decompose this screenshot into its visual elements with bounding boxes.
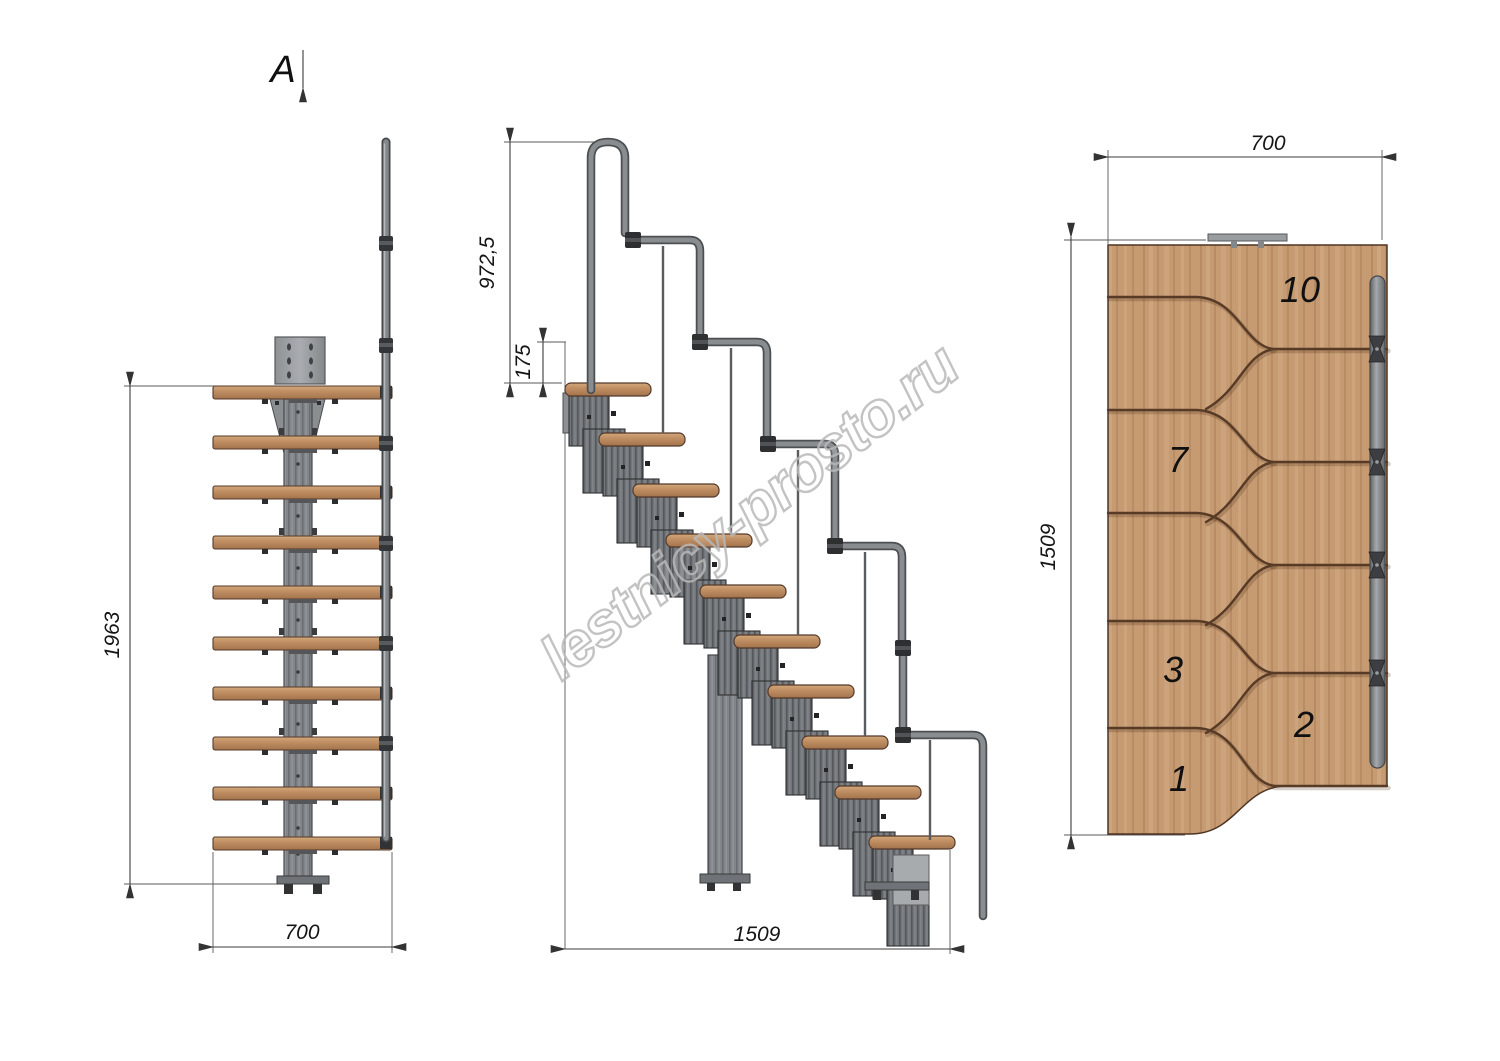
step-label-3: 3 <box>1163 649 1183 690</box>
plate-stem <box>1231 241 1237 248</box>
side-rise-dim: 175 <box>512 344 535 379</box>
rail-clamp <box>895 727 911 743</box>
plan-width-dim: 700 <box>1250 132 1285 155</box>
handrail-loop <box>591 142 625 390</box>
base-foot <box>313 884 322 894</box>
base-foot <box>284 884 293 894</box>
rail-clamp <box>827 538 843 554</box>
front-width-dim: 700 <box>284 921 319 944</box>
step-label-10: 10 <box>1280 269 1320 310</box>
base-foot <box>707 883 715 891</box>
front-height-dim: 1963 <box>101 611 124 658</box>
handrail-loop <box>591 142 625 390</box>
rail-clamp <box>625 232 641 248</box>
plan-mounting-plate <box>1208 234 1287 241</box>
staircase-drawing: 1963 <box>0 0 1500 1061</box>
rail-clamp <box>895 640 911 656</box>
step-label-2: 2 <box>1293 704 1314 745</box>
side-length-dim: 1509 <box>734 923 781 946</box>
step-label-1: 1 <box>1169 758 1189 799</box>
section-arrow-label: A <box>268 49 295 91</box>
plan-length-dim: 1509 <box>1037 523 1060 570</box>
plan-view: 700 1509 10 7 3 2 1 <box>1037 132 1389 835</box>
bolt <box>317 401 321 405</box>
step-label-7: 7 <box>1168 439 1190 480</box>
bolt <box>275 401 279 405</box>
plate-stem <box>1258 241 1264 248</box>
base-foot <box>873 890 881 900</box>
front-view: 1963 <box>101 142 393 953</box>
rail-clamp <box>692 334 708 350</box>
column-base-flange <box>277 876 329 884</box>
mounting-plate <box>275 337 325 384</box>
bottom-base-flange <box>865 882 929 890</box>
side-view: A 972,5 175 <box>268 49 983 954</box>
base-foot <box>911 890 919 900</box>
support-column-flange <box>700 874 750 883</box>
technical-drawing-canvas: 1963 <box>0 0 1500 1061</box>
side-railheight-dim: 972,5 <box>476 236 499 289</box>
base-foot <box>733 883 741 891</box>
